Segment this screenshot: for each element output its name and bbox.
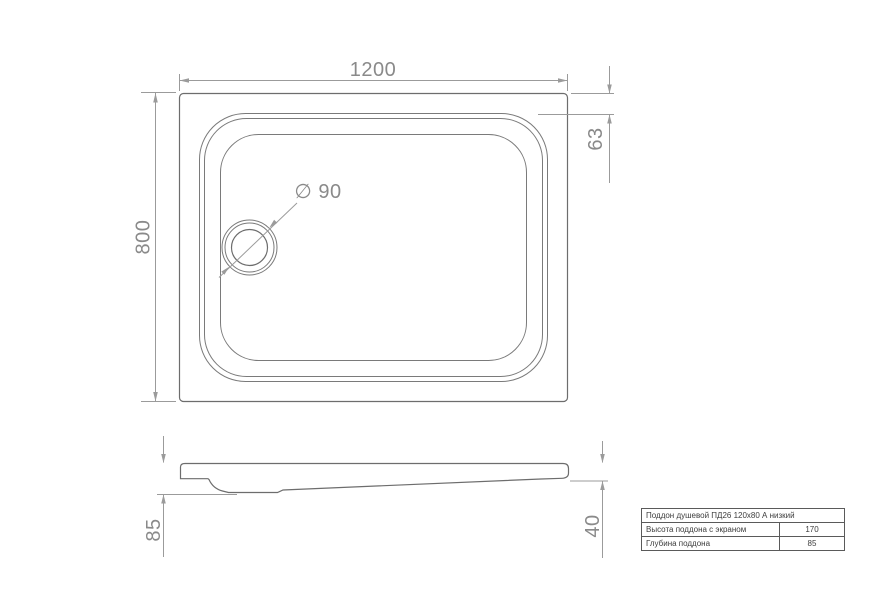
- drain-diameter-label: ∅ 90: [294, 181, 341, 203]
- dim-arrow-down: [600, 454, 605, 463]
- dim-rim-inset-63: 63: [538, 66, 614, 183]
- spec-table: Поддон душевой ПД26 120x80 А низкий Высо…: [641, 508, 845, 551]
- side-height-dim-label: 85: [143, 518, 165, 541]
- dim-height-800: 800: [133, 93, 177, 402]
- dim-arrow-down: [161, 454, 166, 463]
- height-dim-label: 800: [133, 220, 155, 255]
- dim-arrow-bottom: [153, 392, 158, 402]
- dim-drain-diameter: ∅ 90: [219, 181, 342, 278]
- tray-rim-inner-line: [205, 119, 543, 377]
- drawing-canvas: ∅ 90 1200 800 63: [0, 0, 884, 597]
- width-dim-label: 1200: [350, 59, 397, 81]
- tray-side-profile: [181, 464, 569, 493]
- spec-table-row: Высота поддона с экраном 170: [642, 522, 844, 536]
- spec-value: 85: [780, 540, 844, 548]
- spec-value: 170: [780, 526, 844, 534]
- dim-arrow-up: [161, 495, 166, 504]
- dim-arrow-top: [153, 93, 158, 103]
- rim-inset-dim-label: 63: [585, 127, 607, 150]
- spec-table-title-row: Поддон душевой ПД26 120x80 А низкий: [642, 509, 844, 522]
- dim-edge-height-40: 40: [570, 441, 608, 558]
- drain-leader-line: [219, 203, 297, 278]
- dim-side-height-85: 85: [143, 436, 237, 557]
- spec-label: Глубина поддона: [642, 537, 780, 550]
- dim-arrow-right: [558, 78, 568, 83]
- dim-width-1200: 1200: [180, 59, 568, 91]
- product-title: Поддон душевой ПД26 120x80 А низкий: [646, 512, 795, 520]
- edge-height-dim-label: 40: [582, 514, 604, 537]
- side-view: [181, 464, 569, 493]
- spec-label: Высота поддона с экраном: [642, 523, 780, 536]
- drain-leader-arrow-upper: [269, 220, 277, 228]
- dim-arrow-up: [600, 481, 605, 490]
- dim-arrow-left: [180, 78, 190, 83]
- tray-basin-line: [221, 135, 527, 361]
- dim-arrow-down: [607, 85, 612, 94]
- dim-arrow-up: [607, 115, 612, 124]
- spec-table-row: Глубина поддона 85: [642, 536, 844, 550]
- tray-rim-outer-line: [200, 114, 548, 382]
- tray-top-view-outline: [180, 94, 568, 402]
- top-view: [180, 94, 568, 402]
